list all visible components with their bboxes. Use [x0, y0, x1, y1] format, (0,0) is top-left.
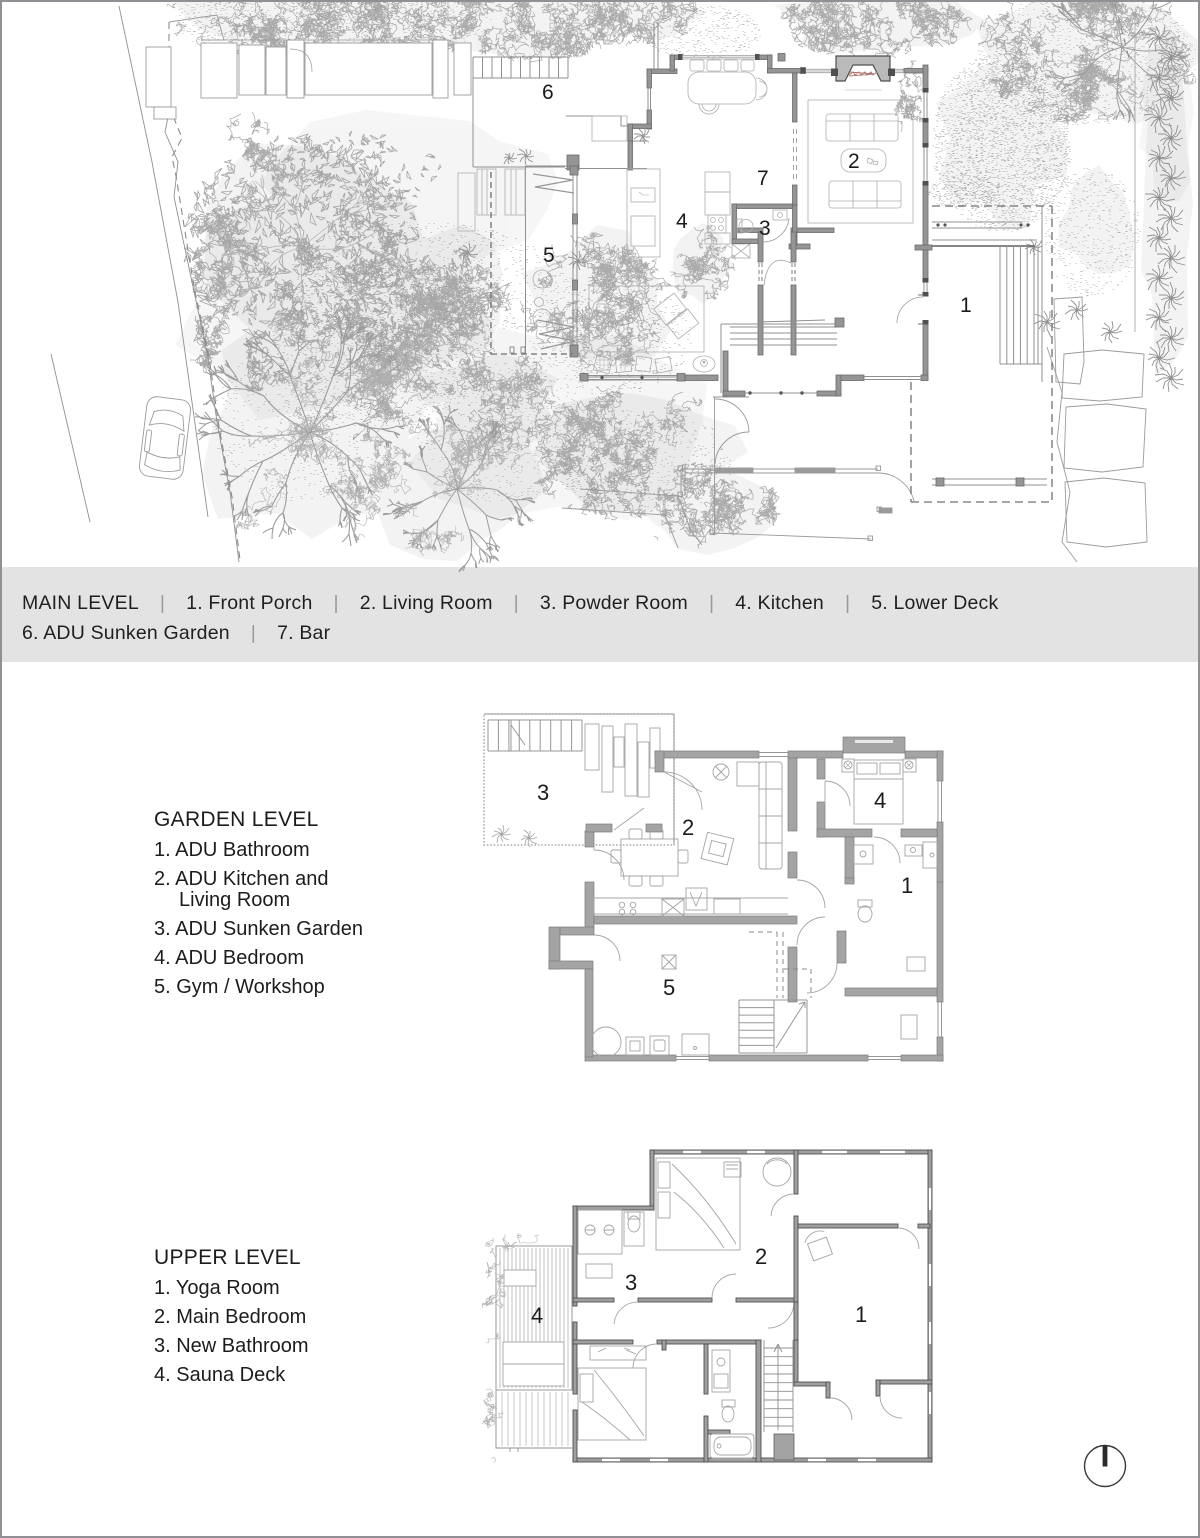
svg-text:3: 3 [625, 1270, 637, 1295]
svg-text:4: 4 [531, 1303, 543, 1328]
svg-text:1: 1 [901, 873, 913, 898]
svg-text:7: 7 [757, 167, 769, 190]
svg-text:3: 3 [537, 780, 549, 805]
svg-text:2: 2 [755, 1244, 767, 1269]
svg-text:5: 5 [663, 975, 675, 1000]
svg-text:6: 6 [542, 81, 554, 104]
svg-text:5: 5 [543, 244, 555, 267]
svg-text:2: 2 [848, 150, 860, 173]
svg-text:1: 1 [855, 1302, 867, 1327]
svg-text:4: 4 [676, 210, 688, 233]
svg-text:1: 1 [960, 294, 972, 317]
svg-text:2: 2 [682, 815, 694, 840]
svg-text:4: 4 [874, 788, 886, 813]
svg-text:3: 3 [759, 217, 771, 240]
